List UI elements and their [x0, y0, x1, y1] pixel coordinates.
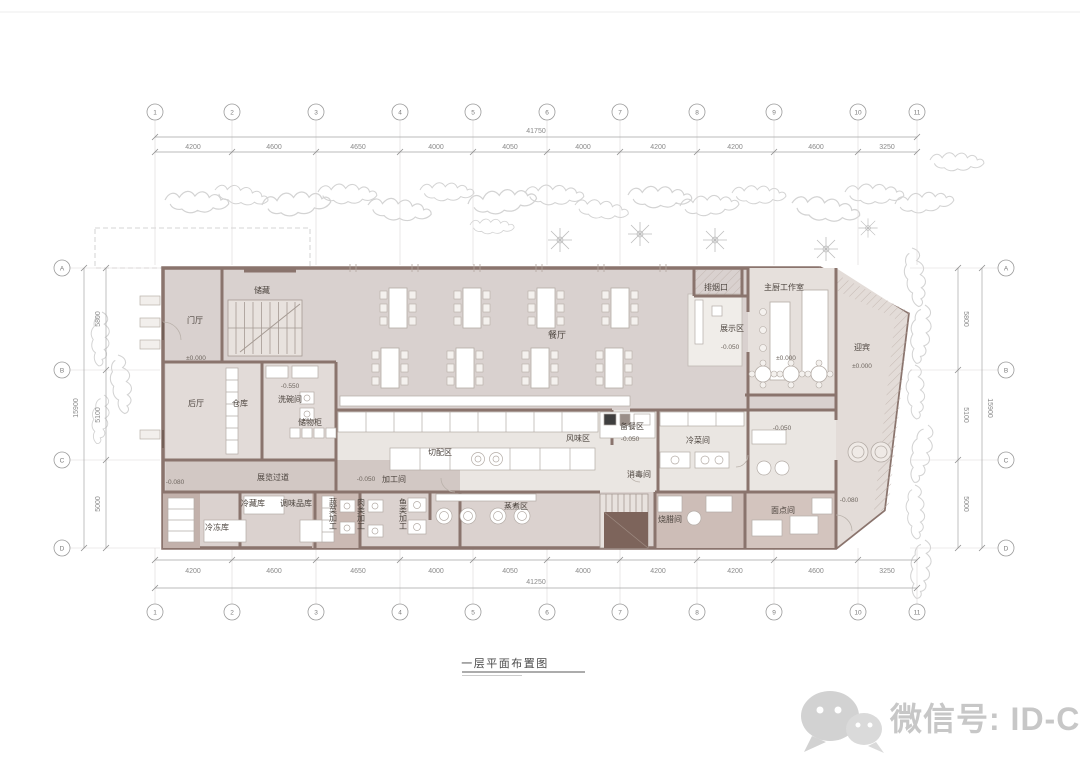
room-label-foyer: 门厅 [187, 315, 203, 325]
canopy-outline [95, 228, 310, 268]
grid-bubble-bot-4: 4 [398, 610, 402, 617]
dim-bot-4: 4000 [428, 568, 444, 575]
room-label-display: 展示区 [720, 324, 744, 333]
grid-bubble-top-1: 1 [153, 110, 157, 117]
room-label-lockers: 储物柜 [298, 417, 322, 427]
dim-top-1: 4200 [185, 144, 201, 151]
room-label-corridor: 展览过道 [257, 472, 289, 482]
room-label-steam: 蒸煮区 [504, 501, 528, 511]
room-label-fish: 鱼类加工 [399, 497, 408, 530]
grid-bubble-bot-6: 6 [545, 610, 549, 617]
dim-top-5: 4050 [502, 144, 518, 151]
room-label-cold-store: 冷藏库 [241, 498, 265, 508]
dim-right-1: 5800 [962, 311, 969, 327]
drawing-title-text: 一层平面布置图 [461, 657, 549, 670]
grid-bubble-top-3: 3 [314, 110, 318, 117]
room-label-storage: 储藏 [254, 285, 270, 295]
wechat-icon [801, 691, 884, 753]
grid-bubble-left-b: B [60, 368, 64, 375]
dimension-band-top: 41750 4200 4600 4650 4000 4050 4000 4200… [147, 104, 925, 265]
grid-bubble-bot-3: 3 [314, 610, 318, 617]
dim-total-left: 15900 [73, 398, 80, 418]
grid-bubble-top-9: 9 [772, 110, 776, 117]
grid-bubble-right-b: B [1004, 368, 1008, 375]
dim-total-top: 41750 [526, 128, 546, 135]
grid-bubble-top-11: 11 [914, 110, 921, 117]
grid-bubble-bot-1: 1 [153, 610, 157, 617]
room-label-chef-studio: 主厨工作室 [764, 282, 804, 292]
room-label-meat: 肉类加工 [357, 497, 366, 530]
grid-bubble-bot-11: 11 [914, 610, 921, 617]
room-label-disinfect: 消毒间 [627, 469, 651, 479]
dim-right-2: 5100 [962, 407, 969, 423]
elevation-corridor: -0.080 [166, 479, 185, 486]
dim-bot-10: 3250 [879, 568, 895, 575]
watermark-text: 微信号: ID-China [889, 701, 1080, 737]
grid-bubble-left-a: A [60, 266, 65, 273]
room-label-dishwash: 洗碗间 [278, 394, 302, 404]
grid-bubble-bot-2: 2 [230, 610, 234, 617]
room-label-processing: 加工间 [382, 474, 406, 484]
floor-plan-sheet: 41750 4200 4600 4650 4000 4050 4000 4200… [0, 0, 1080, 764]
dim-left-2: 5100 [95, 407, 102, 423]
landscape-trees [548, 218, 878, 261]
grid-bubble-top-4: 4 [398, 110, 402, 117]
elevation-display: -0.050 [721, 344, 740, 351]
grid-bubble-top-7: 7 [618, 110, 622, 117]
elevation-dishwash: -0.550 [281, 383, 300, 390]
elevation-chef-studio: ±0.000 [776, 355, 796, 362]
elevation-cold-dish: -0.050 [773, 425, 792, 432]
dim-total-bottom: 41250 [526, 579, 546, 586]
room-label-freezer: 冷冻库 [205, 522, 229, 532]
grid-bubble-right-a: A [1004, 266, 1009, 273]
elevation-foyer: ±0.000 [186, 355, 206, 362]
room-label-veg: 蔬菜加工 [329, 497, 338, 530]
grid-bubble-bot-10: 10 [854, 610, 862, 617]
elevation-pastry: -0.080 [840, 497, 859, 504]
room-label-dining: 餐厅 [548, 329, 566, 340]
dim-bot-9: 4600 [808, 568, 824, 575]
dim-bot-1: 4200 [185, 568, 201, 575]
dim-top-8: 4200 [727, 144, 743, 151]
grid-bubble-top-6: 6 [545, 110, 549, 117]
watermark: 微信号: ID-China [801, 691, 1080, 753]
elevation-prep: -0.050 [621, 436, 640, 443]
grid-bubble-bot-7: 7 [618, 610, 622, 617]
dim-top-9: 4600 [808, 144, 824, 151]
stair-bottom-mid [600, 494, 648, 548]
grid-bubble-top-8: 8 [695, 110, 699, 117]
grid-bubble-top-2: 2 [230, 110, 234, 117]
dim-top-7: 4200 [650, 144, 666, 151]
dim-top-6: 4000 [575, 144, 591, 151]
stair-top-left [228, 300, 302, 356]
elevation-welcome: ±0.000 [852, 363, 872, 370]
room-label-flavor: 风味区 [566, 433, 590, 443]
dim-total-right: 15900 [986, 398, 993, 418]
room-label-welcome: 迎宾 [854, 342, 870, 352]
dim-bot-5: 4050 [502, 568, 518, 575]
exterior-windows [140, 296, 160, 439]
elevation-processing: -0.050 [357, 476, 376, 483]
grid-bubble-left-c: C [60, 458, 65, 465]
dim-bot-7: 4200 [650, 568, 666, 575]
dim-top-2: 4600 [266, 144, 282, 151]
dim-bot-8: 4200 [727, 568, 743, 575]
drawing-title: 一层平面布置图 [461, 657, 585, 676]
room-label-condiment: 调味品库 [280, 498, 312, 508]
grid-bubble-bot-9: 9 [772, 610, 776, 617]
dim-bot-2: 4600 [266, 568, 282, 575]
room-label-exhaust: 排烟口 [704, 282, 728, 292]
dim-top-4: 4000 [428, 144, 444, 151]
room-label-prep: 备餐区 [620, 421, 644, 431]
dim-bot-6: 4000 [575, 568, 591, 575]
room-label-back-hall: 后厅 [188, 398, 204, 408]
dim-left-1: 5800 [95, 311, 102, 327]
dim-top-10: 3250 [879, 144, 895, 151]
grid-bubble-right-d: D [1004, 546, 1009, 553]
dim-top-3: 4650 [350, 144, 366, 151]
grid-bubble-bot-8: 8 [695, 610, 699, 617]
room-label-roast: 烧腊间 [658, 514, 682, 524]
grid-bubble-left-d: D [60, 546, 65, 553]
dimension-band-bottom: 41250 4200 4600 4650 4000 4050 4000 4200… [147, 548, 925, 620]
dim-left-3: 5000 [95, 496, 102, 512]
grid-bubble-top-10: 10 [854, 110, 862, 117]
room-label-cutting: 切配区 [428, 448, 452, 457]
floor-plan-drawing: 41750 4200 4600 4650 4000 4050 4000 4200… [0, 0, 1080, 764]
grid-bubble-right-c: C [1004, 458, 1009, 465]
dim-right-3: 5000 [962, 496, 969, 512]
room-label-cold-dish: 冷菜间 [686, 435, 710, 445]
dim-bot-3: 4650 [350, 568, 366, 575]
dimension-band-right: 15900 5800 5100 5000 A B C D [910, 260, 1014, 556]
grid-bubble-top-5: 5 [471, 110, 475, 117]
room-label-pastry: 面点间 [771, 506, 795, 515]
room-label-warehouse: 仓库 [232, 398, 248, 408]
grid-bubble-bot-5: 5 [471, 610, 475, 617]
